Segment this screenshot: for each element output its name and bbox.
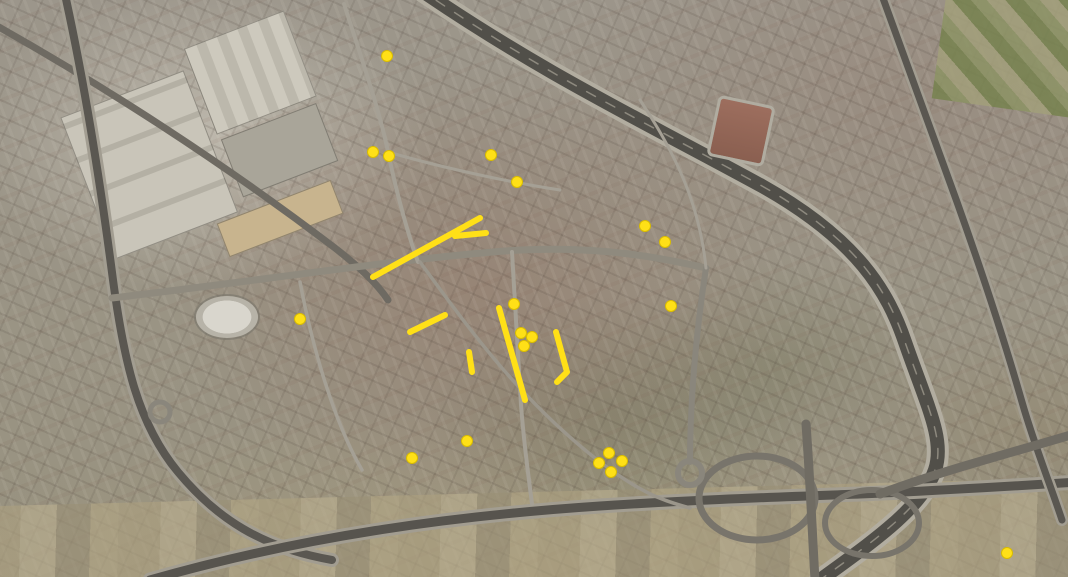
marker-line-short-diagonal[interactable] (410, 315, 445, 332)
map-marker-dot[interactable] (384, 151, 395, 162)
marker-line-elbow[interactable] (556, 332, 567, 382)
map-marker-dot[interactable] (509, 299, 520, 310)
map-marker-dot[interactable] (519, 341, 530, 352)
map-canvas[interactable] (0, 0, 1068, 577)
map-marker-dot[interactable] (486, 150, 497, 161)
marker-line-short-vertical[interactable] (469, 352, 472, 372)
map-marker-dot[interactable] (295, 314, 306, 325)
map-marker-dot[interactable] (594, 458, 605, 469)
map-marker-dot[interactable] (1002, 548, 1013, 559)
marker-overlay (0, 0, 1068, 577)
map-marker-dot[interactable] (527, 332, 538, 343)
map-marker-dot[interactable] (407, 453, 418, 464)
marker-line-long-diagonal[interactable] (373, 218, 480, 277)
marker-line-long-vertical[interactable] (499, 308, 525, 400)
map-marker-dot[interactable] (516, 328, 527, 339)
map-marker-dot[interactable] (606, 467, 617, 478)
map-marker-dot[interactable] (660, 237, 671, 248)
map-marker-dot[interactable] (382, 51, 393, 62)
map-marker-dot[interactable] (512, 177, 523, 188)
marker-line-branch[interactable] (455, 233, 486, 236)
map-marker-dot[interactable] (604, 448, 615, 459)
map-marker-dot[interactable] (640, 221, 651, 232)
map-marker-dot[interactable] (368, 147, 379, 158)
map-marker-dot[interactable] (462, 436, 473, 447)
map-marker-dot[interactable] (666, 301, 677, 312)
map-marker-dot[interactable] (617, 456, 628, 467)
